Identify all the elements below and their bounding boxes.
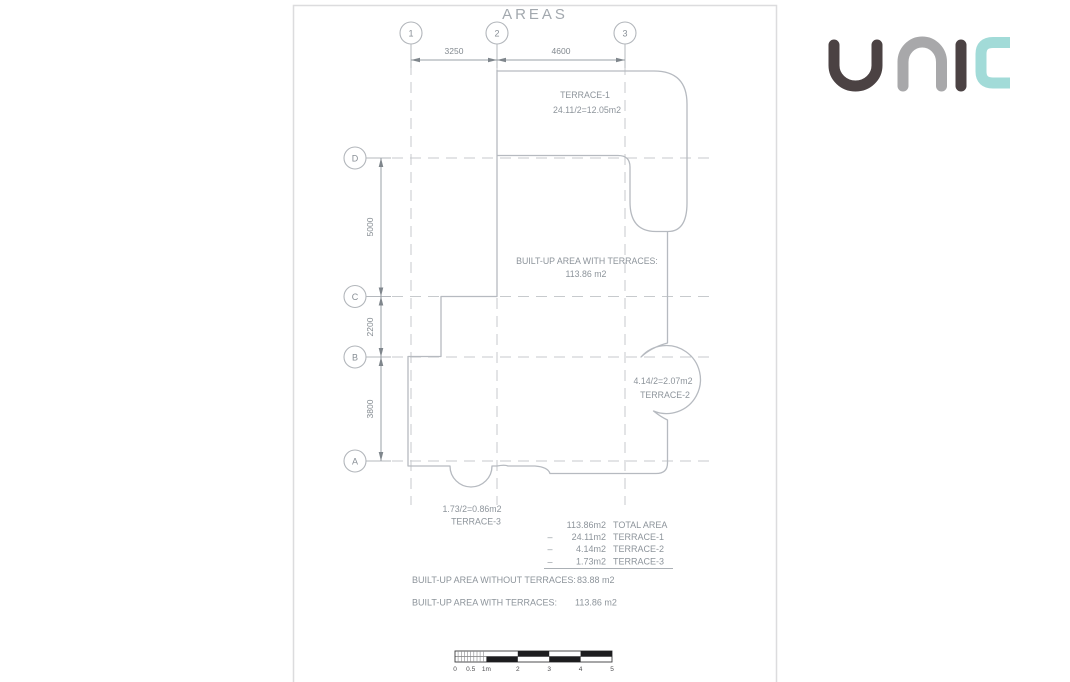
dim-row-c-b: 2200 [365, 317, 375, 336]
dim-col-2-3: 4600 [552, 46, 571, 56]
total-without-terraces-label: BUILT-UP AREA WITHOUT TERRACES: [412, 575, 576, 585]
svg-text:3: 3 [622, 29, 627, 39]
dim-row-b-a: 3800 [365, 399, 375, 418]
terrace-2-label: TERRACE-2 [640, 390, 690, 400]
svg-text:1: 1 [408, 29, 413, 39]
total-without-terraces-value: 83.88 m2 [577, 575, 615, 585]
svg-text:24.11m2: 24.11m2 [572, 532, 606, 542]
svg-text:4: 4 [579, 666, 583, 673]
terrace-3-formula: 1.73/2=0.86m2 [443, 504, 502, 514]
svg-text:–: – [547, 544, 552, 554]
svg-text:D: D [352, 154, 359, 164]
svg-text:–: – [547, 557, 552, 567]
svg-text:C: C [352, 292, 359, 302]
svg-text:B: B [352, 353, 358, 363]
terrace-1-formula: 24.11/2=12.05m2 [553, 105, 621, 115]
terrace-3-label: TERRACE-3 [451, 517, 501, 527]
grid-bubble-2: 2 [486, 22, 508, 44]
terrace-1-label: TERRACE-1 [560, 90, 610, 100]
dim-col-1-2: 3250 [445, 46, 464, 56]
svg-text:1.73m2: 1.73m2 [576, 557, 606, 567]
svg-text:1m: 1m [482, 666, 491, 673]
svg-text:TOTAL AREA: TOTAL AREA [613, 520, 667, 530]
logo-letter-c [981, 43, 1010, 84]
logo-letter-n [903, 42, 942, 86]
summary-row-total: 113.86m2 TOTAL AREA [567, 520, 668, 530]
grid-bubble-d: D [344, 147, 366, 169]
svg-text:TERRACE-3: TERRACE-3 [613, 557, 664, 567]
grid-bubble-a: A [344, 450, 366, 472]
dim-row-d-c: 5000 [365, 217, 375, 236]
builtup-area-label: BUILT-UP AREA WITH TERRACES: [516, 256, 658, 266]
total-with-terraces-label: BUILT-UP AREA WITH TERRACES: [412, 598, 557, 608]
svg-text:113.86m2: 113.86m2 [567, 520, 606, 530]
architectural-drawing-page: AREAS 325 [0, 0, 1070, 682]
grid-bubble-1: 1 [400, 22, 422, 44]
svg-text:4.14m2: 4.14m2 [576, 544, 606, 554]
grid-bubble-b: B [344, 346, 366, 368]
areas-plan-svg: AREAS 325 [0, 0, 1070, 682]
page-title: AREAS [502, 6, 568, 23]
svg-text:TERRACE-1: TERRACE-1 [613, 532, 664, 542]
svg-text:–: – [547, 532, 552, 542]
grid-bubble-c: C [344, 286, 366, 308]
svg-text:A: A [352, 457, 358, 467]
total-with-terraces-value: 113.86 m2 [575, 598, 617, 608]
logo-letter-u [834, 45, 877, 86]
terrace-2-formula: 4.14/2=2.07m2 [634, 376, 693, 386]
svg-text:TERRACE-2: TERRACE-2 [613, 544, 664, 554]
svg-text:3: 3 [547, 666, 551, 673]
svg-text:2: 2 [516, 666, 520, 673]
builtup-area-value: 113.86 m2 [566, 269, 607, 279]
svg-text:0.5: 0.5 [466, 666, 475, 673]
svg-text:2: 2 [494, 29, 499, 39]
unic-logo [834, 42, 1010, 86]
grid-bubble-3: 3 [614, 22, 636, 44]
svg-text:5: 5 [610, 666, 614, 673]
svg-text:0: 0 [453, 666, 457, 673]
